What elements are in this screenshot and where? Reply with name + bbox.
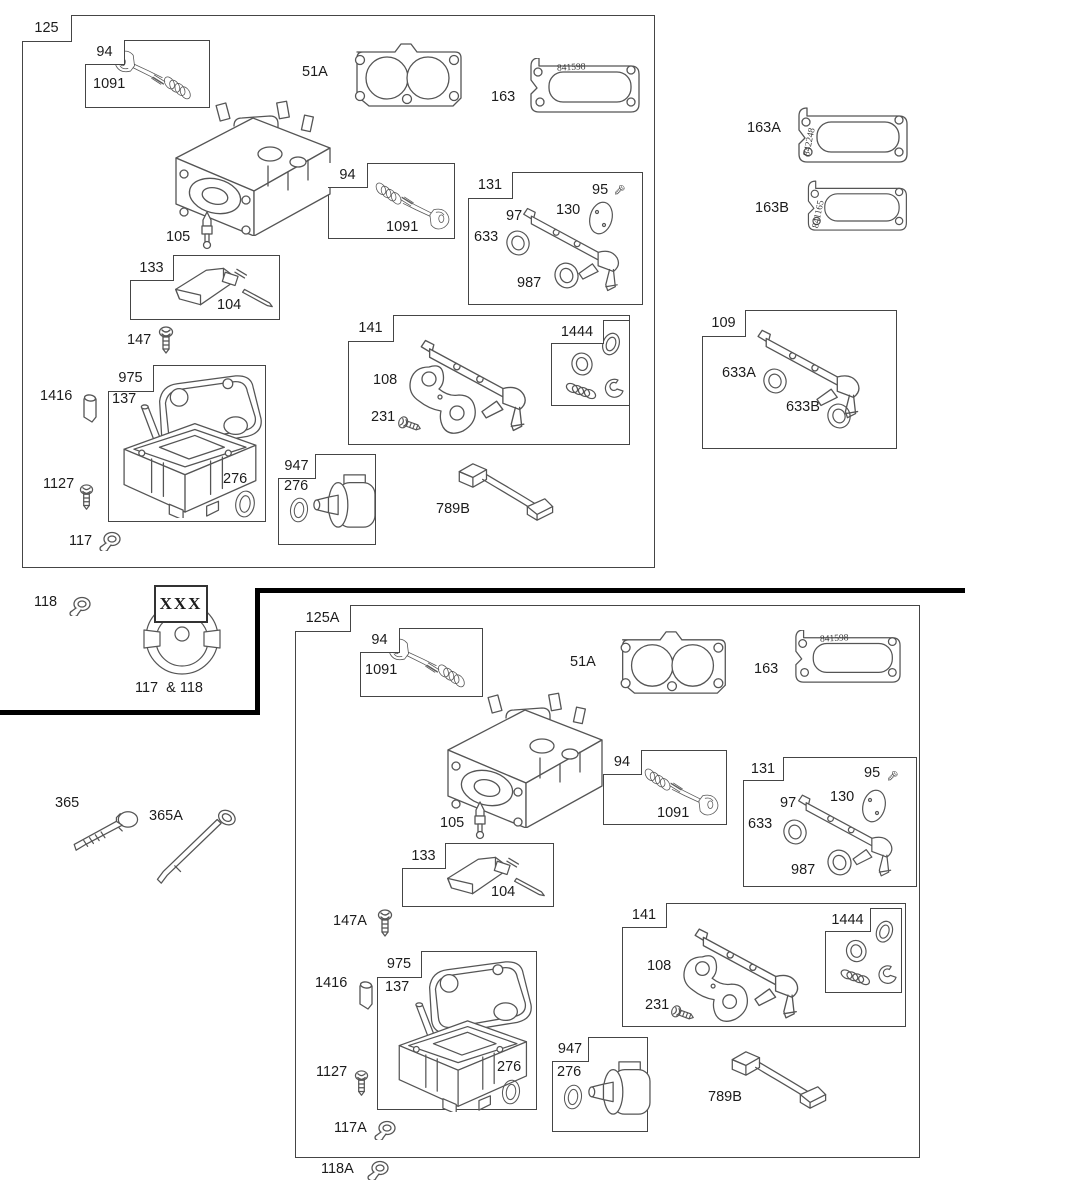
callout-163-lower: 163 bbox=[754, 661, 778, 677]
callout-789B-lower: 789B bbox=[708, 1089, 742, 1105]
plug-118A-drawing bbox=[364, 1160, 390, 1180]
callout-118: 118 bbox=[34, 594, 57, 610]
parts-diagram-canvas: 125 94 1091 51A 163 841598 105 133 104 1… bbox=[0, 0, 1073, 1200]
callout-105: 105 bbox=[166, 229, 190, 245]
section-tag-125A: 125A bbox=[295, 605, 351, 632]
screw-147-drawing bbox=[158, 325, 174, 357]
gasket-stamp-841598-upper: 841598 bbox=[557, 62, 586, 73]
callout-105-lower: 105 bbox=[440, 815, 464, 831]
section-tag-125: 125 bbox=[22, 15, 72, 42]
plug-117A-drawing bbox=[371, 1120, 397, 1140]
callout-130-lower: 130 bbox=[830, 789, 854, 805]
cup-1416-drawing-upper bbox=[80, 393, 100, 425]
seal-987-drawing-lower bbox=[826, 848, 853, 877]
callout-1416-lower: 1416 bbox=[315, 975, 347, 991]
callout-365: 365 bbox=[55, 795, 79, 811]
group-tag-133-lower: 133 bbox=[402, 843, 446, 869]
callout-137: 137 bbox=[112, 391, 136, 407]
callout-276-bowl-lower: 276 bbox=[497, 1059, 521, 1075]
inlet-needle-drawing-upper bbox=[199, 210, 215, 250]
callout-130: 130 bbox=[556, 202, 580, 218]
callout-147: 147 bbox=[127, 332, 151, 348]
callout-104: 104 bbox=[217, 297, 241, 313]
callout-231-lower: 231 bbox=[645, 997, 669, 1013]
inlet-needle-drawing-lower bbox=[472, 800, 488, 840]
callout-1091-lower: 1091 bbox=[365, 662, 397, 678]
callout-108-lower: 108 bbox=[647, 958, 671, 974]
group-tag-131-lower: 131 bbox=[743, 757, 784, 781]
callout-365A: 365A bbox=[149, 808, 183, 824]
divider-line-bottom bbox=[0, 710, 260, 715]
group-tag-141-upper: 141 bbox=[348, 315, 394, 342]
oring-276-drawing-upper bbox=[233, 488, 257, 520]
seal-633-drawing-upper bbox=[505, 229, 531, 257]
plug-117-drawing bbox=[96, 531, 122, 551]
legend-117-and-118: 117 & 118 bbox=[135, 680, 203, 696]
group-tag-1444-upper: 1444 bbox=[551, 320, 604, 344]
group-tag-1444-lower: 1444 bbox=[825, 908, 871, 932]
seal-633A-drawing bbox=[762, 367, 788, 395]
seal-987-drawing-upper bbox=[553, 261, 580, 290]
group-tag-131-upper: 131 bbox=[468, 172, 513, 199]
screw-147A-drawing bbox=[377, 908, 393, 940]
wire-harness-drawing-upper bbox=[452, 458, 556, 528]
callout-1091-b-lower: 1091 bbox=[657, 805, 689, 821]
callout-147A: 147A bbox=[333, 913, 367, 929]
callout-163A: 163A bbox=[747, 120, 781, 136]
gasket-stamp-841598-lower: 841598 bbox=[820, 633, 849, 644]
group-tag-141-lower: 141 bbox=[622, 903, 667, 928]
solenoid-947-drawing-lower bbox=[580, 1056, 654, 1120]
oring-276-drawing-lower bbox=[500, 1077, 522, 1107]
callout-1127-lower: 1127 bbox=[316, 1064, 347, 1080]
divider-line-top bbox=[255, 588, 965, 593]
carburetor-body-drawing-lower bbox=[430, 688, 610, 828]
callout-987-lower: 987 bbox=[791, 862, 815, 878]
gasket-51A-drawing-upper bbox=[347, 38, 467, 113]
callout-137-lower: 137 bbox=[385, 979, 409, 995]
gasket-51A-drawing-lower bbox=[612, 626, 732, 700]
screw-1127-drawing-lower bbox=[354, 1070, 369, 1098]
callout-633A: 633A bbox=[722, 365, 756, 381]
group-tag-109: 109 bbox=[702, 310, 746, 337]
group-tag-975-upper: 975 bbox=[108, 365, 154, 392]
callout-51A-lower: 51A bbox=[570, 654, 596, 670]
callout-633-lower: 633 bbox=[748, 816, 772, 832]
callout-97: 97 bbox=[506, 208, 522, 224]
bolt-365-drawing bbox=[63, 806, 143, 854]
callout-1091-b: 1091 bbox=[386, 219, 418, 235]
callout-789B: 789B bbox=[436, 501, 470, 517]
callout-1091: 1091 bbox=[93, 76, 125, 92]
callout-95-lower: 95 bbox=[864, 765, 880, 781]
group-tag-947-upper: 947 bbox=[278, 454, 316, 479]
screw-1127-drawing-upper bbox=[79, 484, 94, 512]
solenoid-947-drawing-upper bbox=[305, 469, 379, 533]
group-tag-94-upper: 94 bbox=[85, 40, 125, 65]
callout-276-bowl-upper: 276 bbox=[223, 471, 247, 487]
callout-108: 108 bbox=[373, 372, 397, 388]
callout-987: 987 bbox=[517, 275, 541, 291]
group-tag-94b-upper: 94 bbox=[328, 163, 368, 188]
wire-harness-drawing-lower bbox=[725, 1046, 829, 1116]
callout-163: 163 bbox=[491, 89, 515, 105]
callout-231: 231 bbox=[371, 409, 395, 425]
group-tag-94-lower: 94 bbox=[360, 628, 400, 653]
callout-117: 117 bbox=[69, 533, 92, 549]
callout-1416: 1416 bbox=[40, 388, 72, 404]
seal-633-drawing-lower bbox=[782, 818, 808, 846]
callout-117A: 117A bbox=[334, 1120, 367, 1136]
group-tag-975-lower: 975 bbox=[377, 951, 422, 978]
callout-276-solenoid-upper: 276 bbox=[284, 478, 308, 494]
callout-633: 633 bbox=[474, 229, 498, 245]
callout-97-lower: 97 bbox=[780, 795, 796, 811]
plug-118-drawing bbox=[66, 596, 92, 616]
group-tag-94b-lower: 94 bbox=[603, 750, 642, 775]
callout-163B: 163B bbox=[755, 200, 789, 216]
cup-1416-drawing-lower bbox=[356, 980, 376, 1012]
callout-1127: 1127 bbox=[43, 476, 74, 492]
callout-633B: 633B bbox=[786, 399, 820, 415]
callout-118A: 118A bbox=[321, 1161, 354, 1177]
callout-104-lower: 104 bbox=[491, 884, 515, 900]
seal-633B-drawing bbox=[826, 402, 852, 430]
group-tag-133-upper: 133 bbox=[130, 255, 174, 281]
callout-95: 95 bbox=[592, 182, 608, 198]
group-tag-947-lower: 947 bbox=[552, 1037, 589, 1062]
divider-line-vertical bbox=[255, 588, 260, 715]
callout-51A: 51A bbox=[302, 64, 328, 80]
carburetor-body-drawing-upper bbox=[158, 96, 338, 236]
callout-276-solenoid-lower: 276 bbox=[557, 1064, 581, 1080]
xxx-label-box: XXX bbox=[154, 585, 208, 623]
